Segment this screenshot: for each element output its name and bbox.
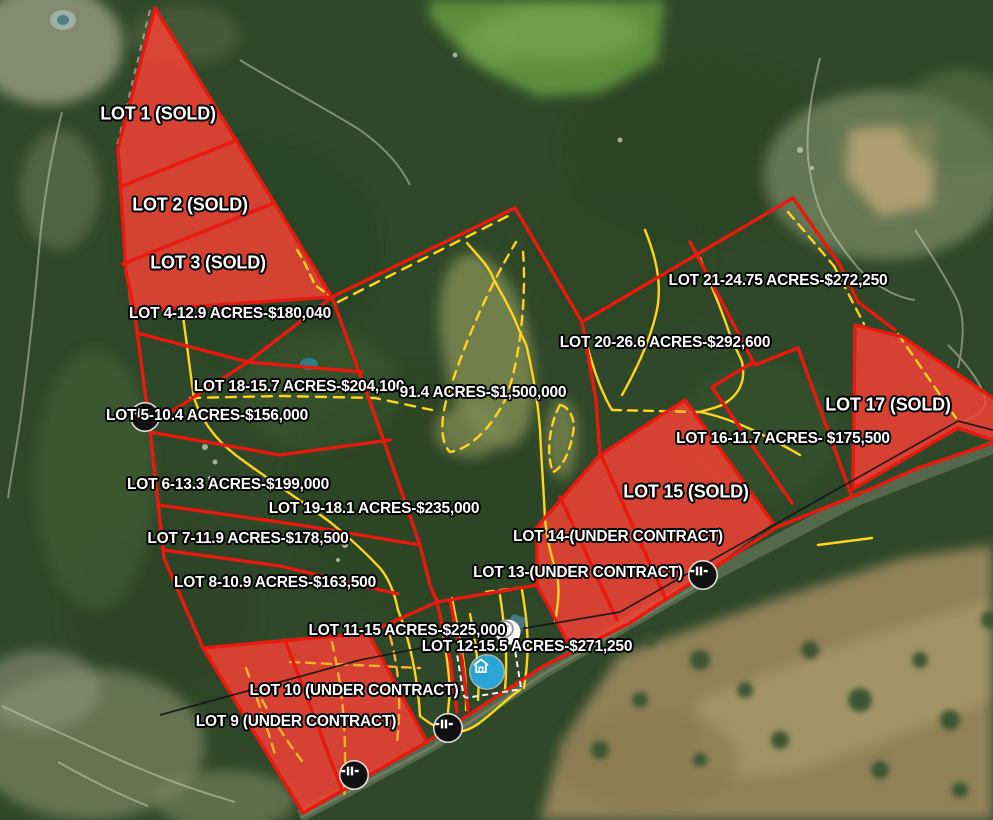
lot-label-21: LOT 21-24.75 ACRES-$272,250 bbox=[669, 272, 888, 290]
remainder-tract-label: 91.4 ACRES-$1,500,000 bbox=[400, 384, 567, 402]
lot-label-17: LOT 17 (SOLD) bbox=[825, 395, 950, 416]
gate-marker-icon[interactable] bbox=[341, 762, 368, 789]
lot-label-19: LOT 19-18.1 ACRES-$235,000 bbox=[269, 500, 479, 518]
lot-label-7: LOT 7-11.9 ACRES-$178,500 bbox=[147, 530, 348, 548]
lot-label-3: LOT 3 (SOLD) bbox=[150, 253, 266, 274]
gate-marker-icon[interactable] bbox=[435, 715, 462, 742]
lot-label-8: LOT 8-10.9 ACRES-$163,500 bbox=[174, 574, 376, 592]
home-marker[interactable] bbox=[471, 656, 504, 689]
lot-label-12: LOT 12-15.5 ACRES-$271,250 bbox=[422, 638, 632, 656]
gate-marker-icon[interactable] bbox=[690, 562, 717, 589]
lot-label-15: LOT 15 (SOLD) bbox=[623, 482, 748, 503]
lot-label-4: LOT 4-12.9 ACRES-$180,040 bbox=[129, 305, 331, 323]
lot-label-20: LOT 20-26.6 ACRES-$292,600 bbox=[560, 334, 770, 352]
lot-label-2: LOT 2 (SOLD) bbox=[132, 195, 248, 216]
map-canvas[interactable]: LOT 1 (SOLD) LOT 2 (SOLD) LOT 3 (SOLD) L… bbox=[0, 0, 993, 820]
lot-label-16: LOT 16-11.7 ACRES- $175,500 bbox=[676, 430, 890, 448]
lot-label-5: LOT 5-10.4 ACRES-$156,000 bbox=[106, 407, 308, 425]
lot-label-6: LOT 6-13.3 ACRES-$199,000 bbox=[127, 476, 329, 494]
lot-label-1: LOT 1 (SOLD) bbox=[100, 104, 216, 125]
house-icon bbox=[471, 656, 492, 677]
gate-icon bbox=[690, 562, 709, 581]
gate-icon bbox=[341, 762, 360, 781]
lot-label-10: LOT 10 (UNDER CONTRACT) bbox=[250, 682, 459, 700]
lot-label-13: LOT 13-(UNDER CONTRACT) bbox=[473, 564, 683, 582]
lot-label-18: LOT 18-15.7 ACRES-$204,100 bbox=[194, 378, 404, 396]
gate-icon bbox=[435, 715, 454, 734]
lot-label-9: LOT 9 (UNDER CONTRACT) bbox=[196, 713, 397, 731]
lot-label-14: LOT 14-(UNDER CONTRACT) bbox=[513, 528, 723, 546]
